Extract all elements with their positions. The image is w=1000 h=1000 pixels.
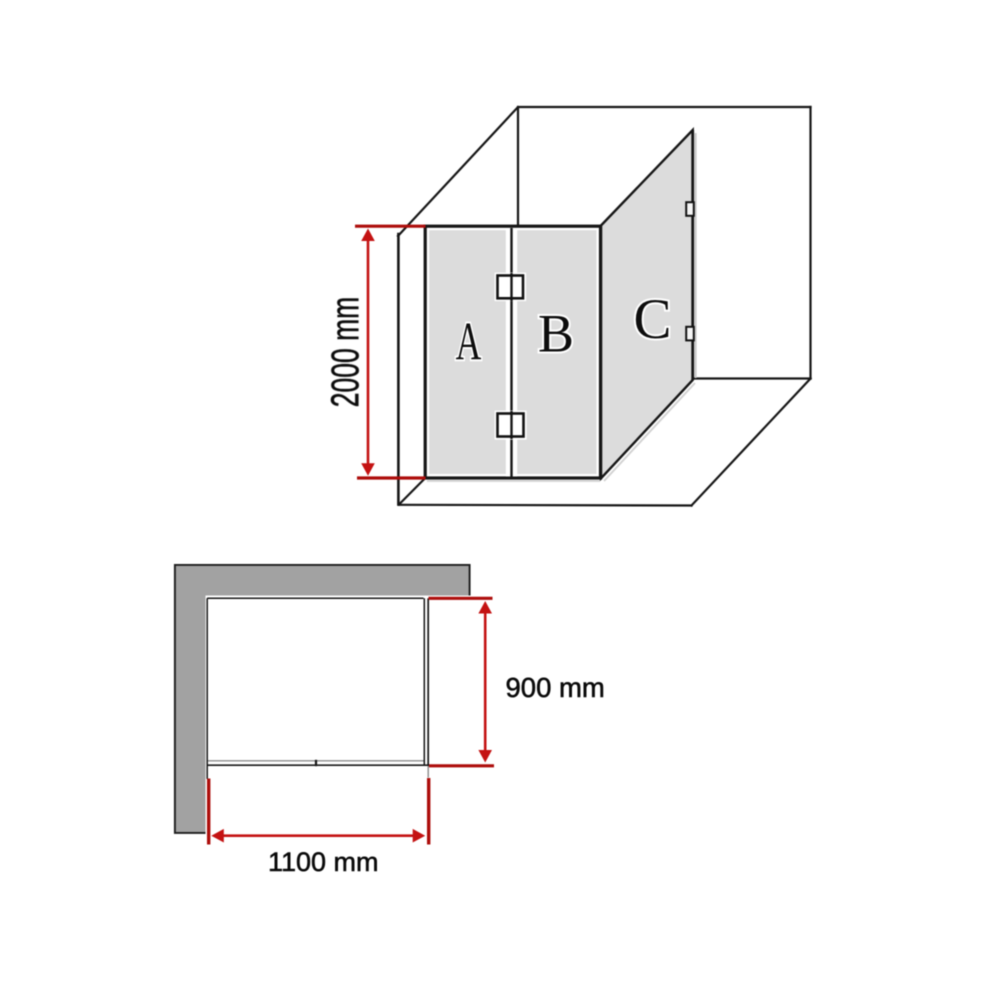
svg-text:C: C — [633, 288, 671, 351]
svg-text:900 mm: 900 mm — [506, 672, 605, 703]
svg-text:A: A — [456, 311, 482, 371]
svg-text:B: B — [538, 304, 574, 364]
svg-text:2000 mm: 2000 mm — [324, 297, 367, 407]
svg-text:1100 mm: 1100 mm — [268, 847, 379, 877]
